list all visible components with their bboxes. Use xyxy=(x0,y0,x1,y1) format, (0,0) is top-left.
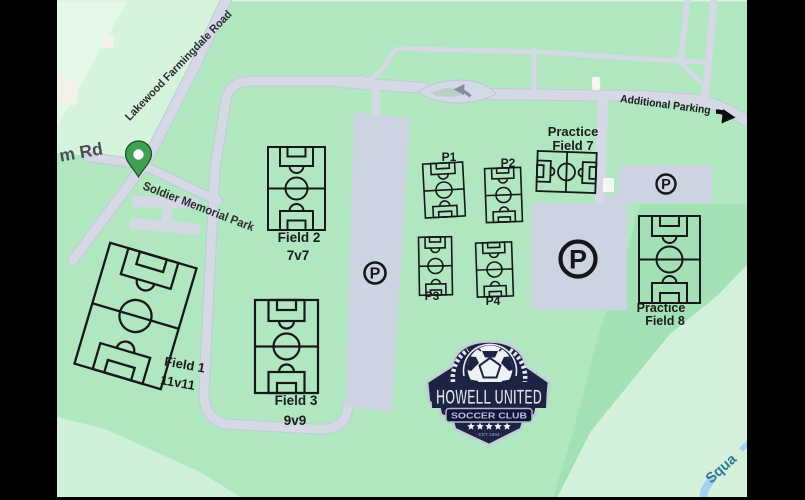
svg-text:HOWELL UNITED: HOWELL UNITED xyxy=(436,386,542,409)
svg-text:Field 7: Field 7 xyxy=(552,138,593,153)
svg-text:P2: P2 xyxy=(501,156,516,170)
svg-text:Field 8: Field 8 xyxy=(645,314,685,328)
svg-text:P: P xyxy=(370,266,381,283)
svg-text:P1: P1 xyxy=(442,150,457,164)
svg-text:· EST 1994 ·: · EST 1994 · xyxy=(475,432,503,438)
svg-text:9v9: 9v9 xyxy=(284,413,307,428)
svg-text:Practice: Practice xyxy=(548,124,599,139)
svg-text:Field 2: Field 2 xyxy=(278,230,321,245)
svg-text:Practice: Practice xyxy=(637,301,686,315)
svg-text:P3: P3 xyxy=(425,289,440,303)
svg-text:P: P xyxy=(661,177,671,193)
svg-text:Field 3: Field 3 xyxy=(275,393,318,408)
svg-text:7v7: 7v7 xyxy=(287,248,310,263)
svg-text:P4: P4 xyxy=(486,294,501,308)
svg-text:SOCCER CLUB: SOCCER CLUB xyxy=(451,411,527,421)
svg-text:P: P xyxy=(569,245,587,275)
